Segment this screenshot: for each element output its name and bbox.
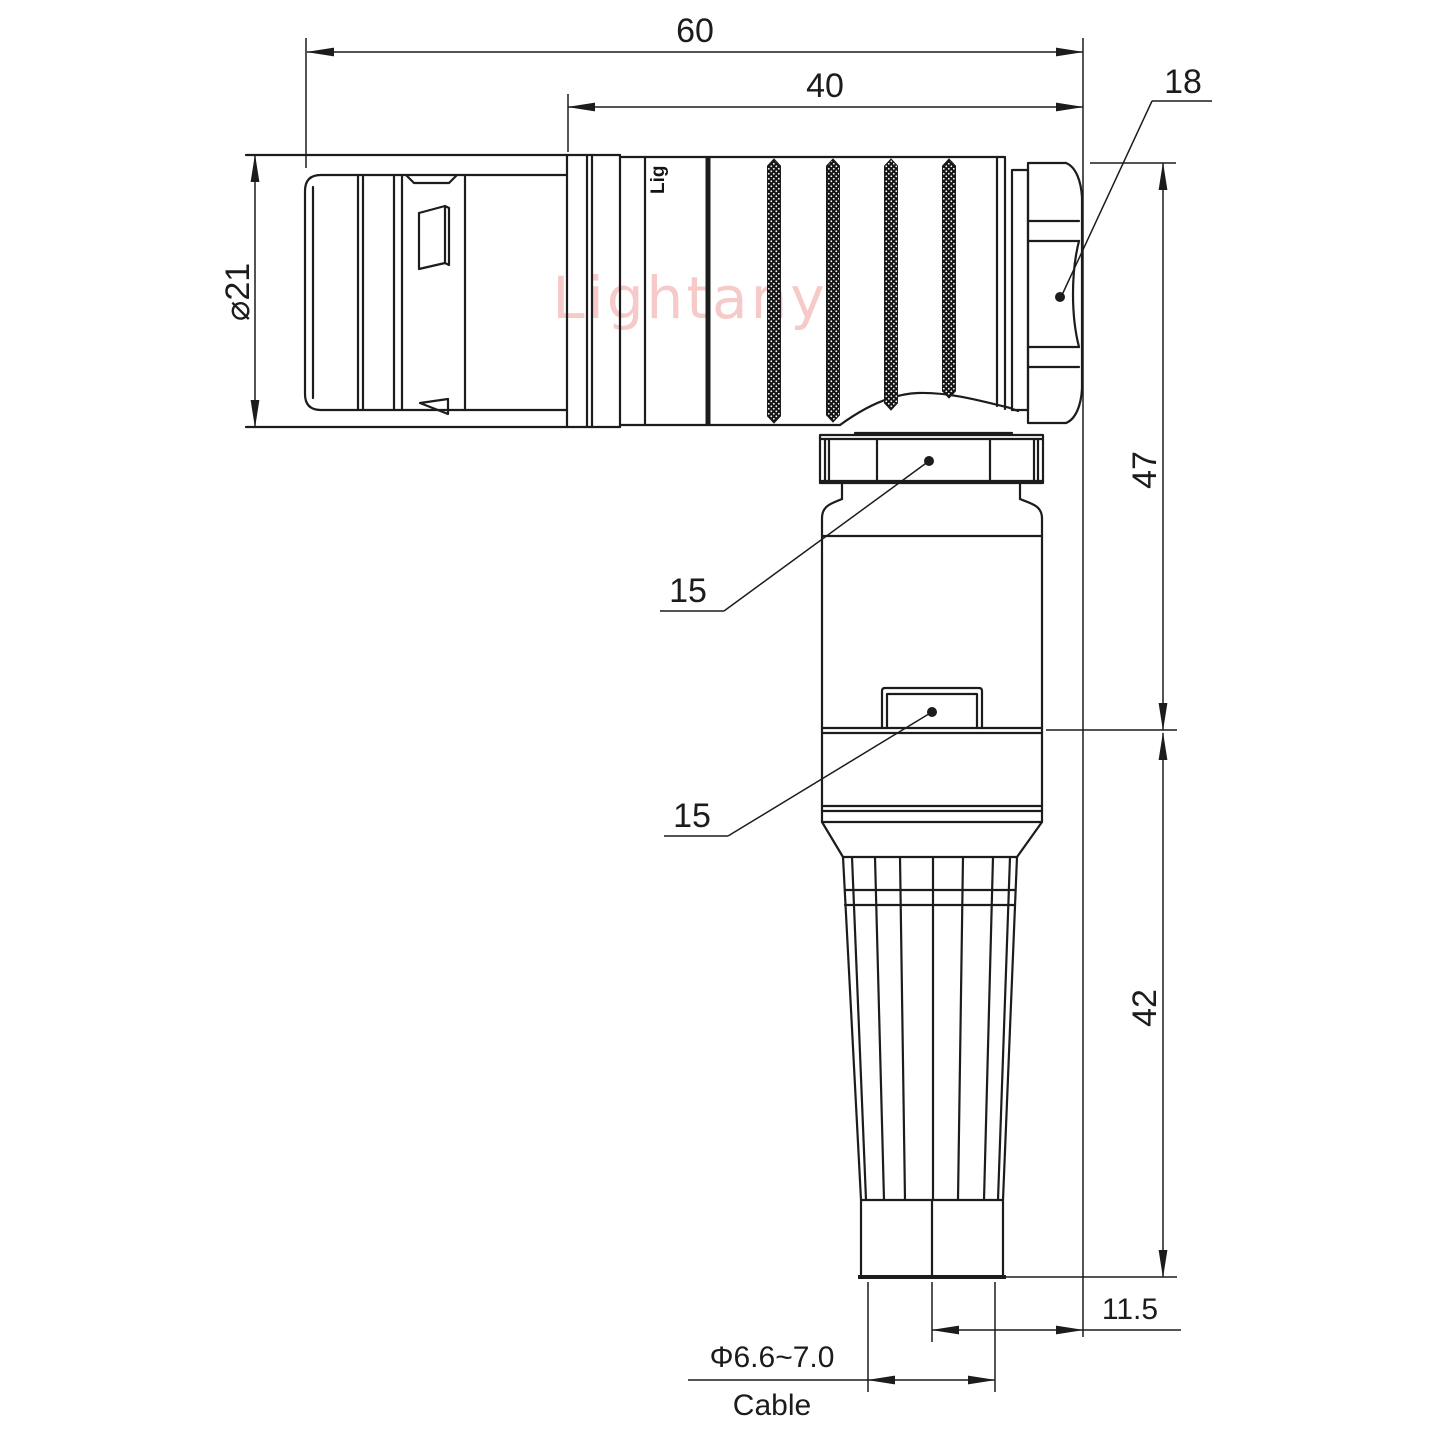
rear-body-right-face bbox=[997, 158, 1005, 409]
vertical-body-sides bbox=[822, 518, 1042, 822]
leader-collar-width: 15 bbox=[660, 456, 934, 611]
leader-dot-nut bbox=[1055, 292, 1065, 302]
washer bbox=[1012, 170, 1028, 410]
dim-47-label: 47 bbox=[1126, 451, 1164, 489]
technical-drawing-right-angle-connector: Lightany bbox=[0, 0, 1440, 1440]
front-shell-outline bbox=[305, 175, 567, 410]
dimension-cable-offset: 11.5 bbox=[932, 1282, 1181, 1342]
dimension-lower-height: 42 bbox=[1006, 733, 1177, 1277]
connector-vertical-assembly bbox=[820, 435, 1043, 1277]
latch-window bbox=[419, 206, 449, 269]
dimension-cable-diameter: Φ6.6~7.0 Cable bbox=[688, 1282, 995, 1422]
dimension-body-length: 40 bbox=[568, 67, 1083, 152]
leader-body-width: 15 bbox=[664, 707, 937, 836]
dimension-overall-length: 60 bbox=[306, 12, 1083, 1337]
rear-hex-nut bbox=[1028, 163, 1082, 423]
dimension-shell-diameter: ⌀21 bbox=[219, 155, 257, 427]
dim-42-label: 42 bbox=[1126, 989, 1164, 1027]
dim-15-body-label: 15 bbox=[673, 797, 711, 835]
leader-dot-collar bbox=[924, 456, 934, 466]
watermark-text: Lightany bbox=[552, 264, 827, 332]
dim-cable-dia-label: Φ6.6~7.0 bbox=[710, 1341, 835, 1374]
body-logo-text: Lig bbox=[648, 166, 669, 195]
leader-dot-body bbox=[927, 707, 937, 717]
dim-dia21-label: ⌀21 bbox=[219, 263, 257, 321]
elbow-hump bbox=[840, 393, 1018, 425]
dim-60-label: 60 bbox=[676, 12, 714, 50]
latch-tab bbox=[420, 399, 448, 414]
strain-relief-plate bbox=[822, 822, 1042, 857]
dim-11p5-label: 11.5 bbox=[1102, 1293, 1158, 1326]
dim-40-label: 40 bbox=[806, 67, 844, 105]
strain-relief-fingers bbox=[843, 857, 1017, 1200]
drawing-svg: Lightany bbox=[0, 0, 1440, 1440]
keyway-notch bbox=[406, 175, 457, 183]
dimension-upper-height: 47 bbox=[1046, 163, 1177, 730]
cable-label: Cable bbox=[733, 1389, 811, 1422]
dim-18-label: 18 bbox=[1164, 63, 1202, 101]
dim-15-collar-label: 15 bbox=[669, 572, 707, 610]
vertical-body-joints bbox=[822, 728, 1042, 811]
cable-sleeve bbox=[858, 1200, 1006, 1277]
neck bbox=[842, 483, 1020, 499]
leader-nut-size: 18 bbox=[1055, 63, 1212, 302]
